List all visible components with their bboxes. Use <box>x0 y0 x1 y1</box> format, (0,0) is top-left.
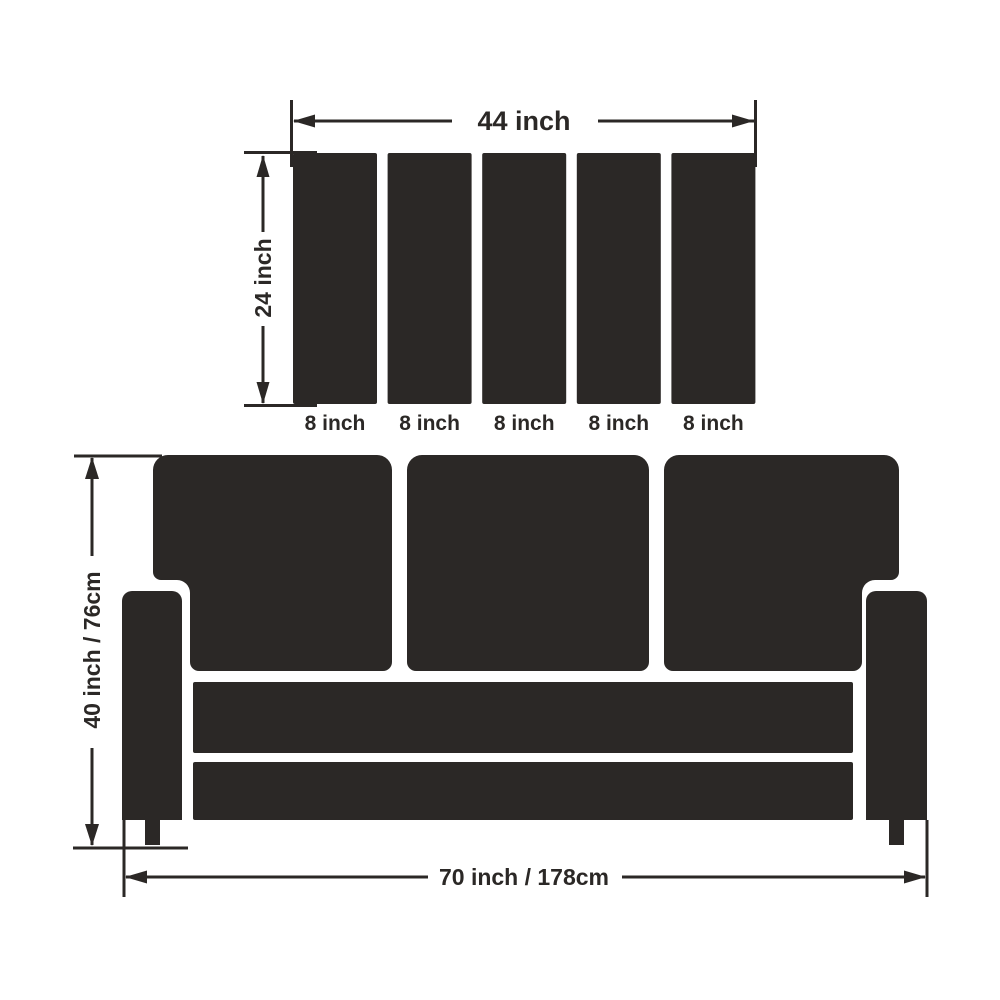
slat-1-width-label: 8 inch <box>305 412 366 435</box>
base-band <box>193 762 853 820</box>
sofa-leg-right <box>889 820 904 845</box>
slat-4 <box>577 153 661 404</box>
sofa-dimension-diagram: 44 inch 24 inch 8 inch 8 inch 8 inch 8 i… <box>0 0 1000 1000</box>
arrowhead-right-icon <box>904 871 926 884</box>
diagram-canvas: 44 inch 24 inch 8 inch 8 inch 8 inch 8 i… <box>0 0 1000 1000</box>
arrowhead-left-icon <box>293 115 315 128</box>
slat-5 <box>671 153 755 404</box>
slat-1 <box>293 153 377 404</box>
back-cushion-left <box>153 455 392 671</box>
slat-panel-diagram: 44 inch 24 inch 8 inch 8 inch 8 inch 8 i… <box>244 100 756 435</box>
back-cushion-right <box>664 455 899 671</box>
arrowhead-down-icon <box>85 824 99 846</box>
arrowhead-right-icon <box>732 115 754 128</box>
slat-4-width-label: 8 inch <box>588 412 649 435</box>
slat-5-width-label: 8 inch <box>683 412 744 435</box>
sofa-front-diagram: 40 inch / 76cm 70 inch / 178cm <box>73 455 927 897</box>
armrest-right <box>866 591 927 820</box>
arrowhead-up-icon <box>257 155 270 177</box>
slat-3 <box>482 153 566 404</box>
slat-panel-height-label: 24 inch <box>250 238 276 317</box>
slat-3-width-label: 8 inch <box>494 412 555 435</box>
slat-2 <box>388 153 472 404</box>
arrowhead-up-icon <box>85 457 99 479</box>
arrowhead-down-icon <box>257 382 270 404</box>
arrowhead-left-icon <box>125 871 147 884</box>
armrest-left <box>122 591 182 820</box>
sofa-width-label: 70 inch / 178cm <box>439 864 609 890</box>
seat-cushion-band <box>193 682 853 753</box>
slat-panel-width-label: 44 inch <box>477 106 570 136</box>
slat-2-width-label: 8 inch <box>399 412 460 435</box>
sofa-leg-left <box>145 820 160 845</box>
back-cushion-middle <box>407 455 649 671</box>
sofa-height-label: 40 inch / 76cm <box>79 571 105 728</box>
